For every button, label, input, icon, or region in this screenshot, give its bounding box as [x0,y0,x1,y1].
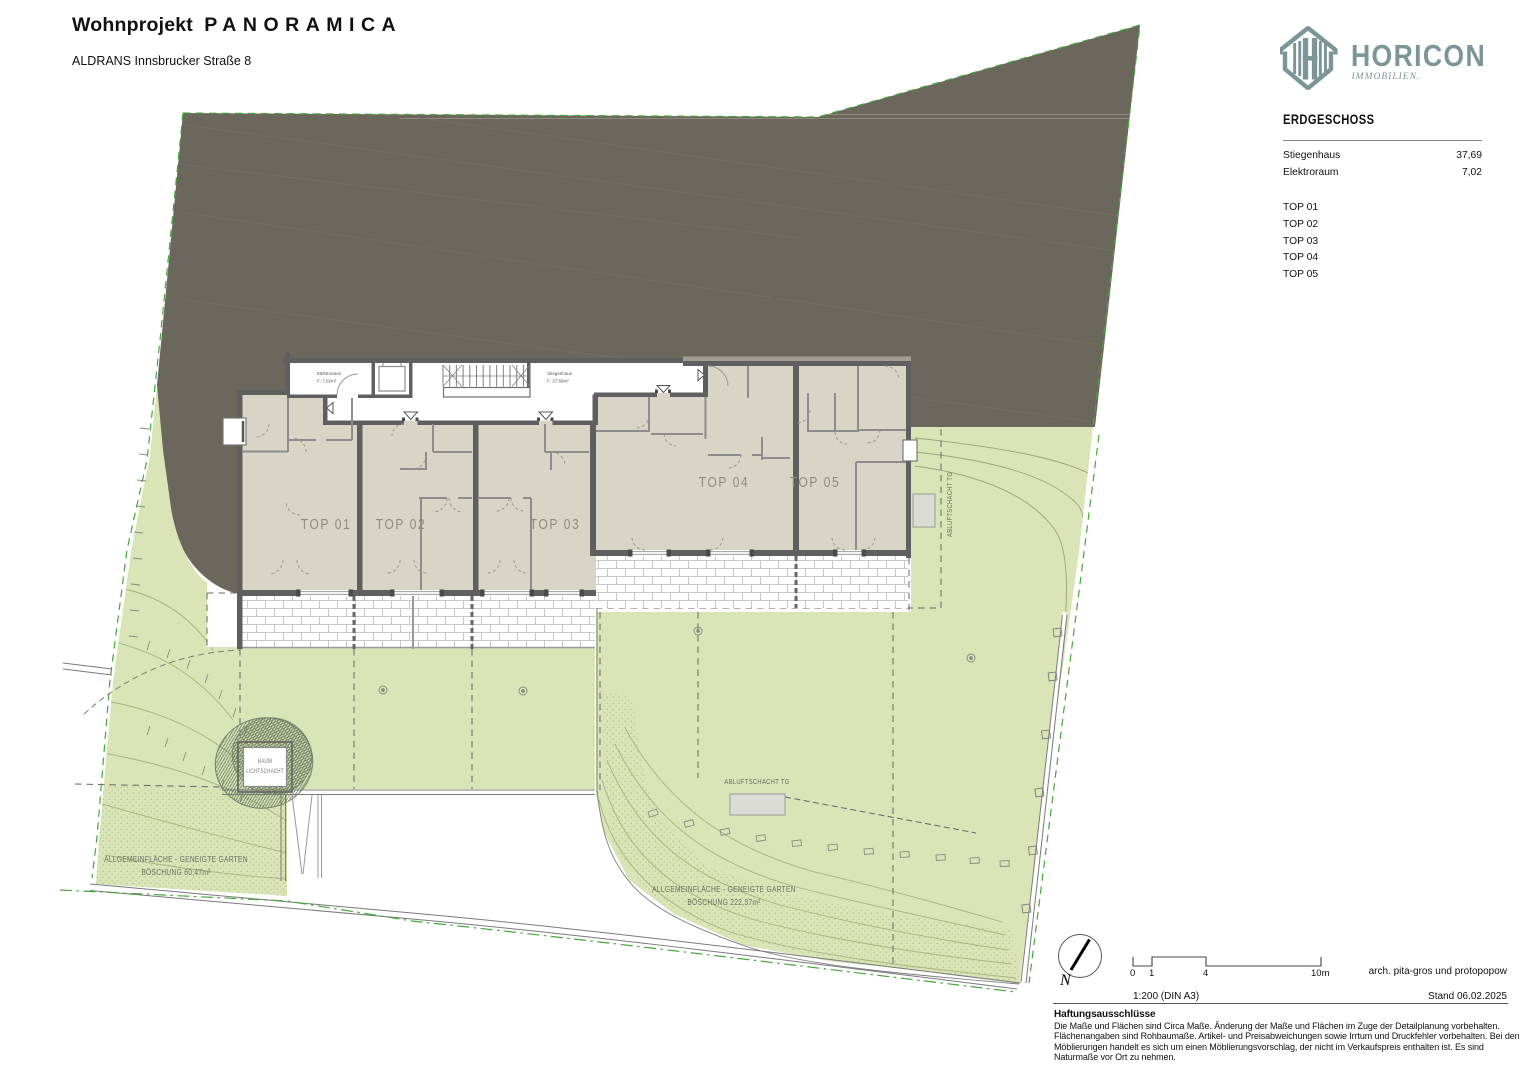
svg-text:TOP 02: TOP 02 [376,516,427,533]
svg-text:ABLUFTSCHACHT TG: ABLUFTSCHACHT TG [724,778,789,786]
svg-text:BÖSCHUNG 222,37m²: BÖSCHUNG 222,37m² [687,897,760,907]
svg-text:TOP 05: TOP 05 [790,474,841,491]
svg-text:TOP 03: TOP 03 [530,516,581,533]
svg-text:BAUM: BAUM [258,758,272,765]
svg-text:HORICON: HORICON [1351,39,1486,73]
svg-text:BÖSCHUNG 60,47m²: BÖSCHUNG 60,47m² [141,867,210,877]
svg-text:TOP 04: TOP 04 [699,474,750,491]
svg-text:LICHTSCHACHT: LICHTSCHACHT [246,768,284,775]
svg-text:Elektroraum: Elektroraum [317,371,342,376]
svg-text:N: N [1059,972,1072,989]
svg-text:TOP 01: TOP 01 [301,516,352,533]
svg-text:ALLGEMEINFLÄCHE - GENEIGTE GAR: ALLGEMEINFLÄCHE - GENEIGTE GARTEN [104,854,248,864]
svg-text:ABLUFTSCHACHT TG: ABLUFTSCHACHT TG [946,472,954,537]
svg-text:F: 7,02m²: F: 7,02m² [317,379,337,384]
svg-text:F: 37,69m²: F: 37,69m² [547,379,569,384]
svg-text:IMMOBILIEN.: IMMOBILIEN. [1351,72,1421,82]
svg-text:ALLGEMEINFLÄCHE - GENEIGTE GAR: ALLGEMEINFLÄCHE - GENEIGTE GARTEN [652,884,796,894]
svg-text:Stiegenhaus: Stiegenhaus [547,371,573,376]
